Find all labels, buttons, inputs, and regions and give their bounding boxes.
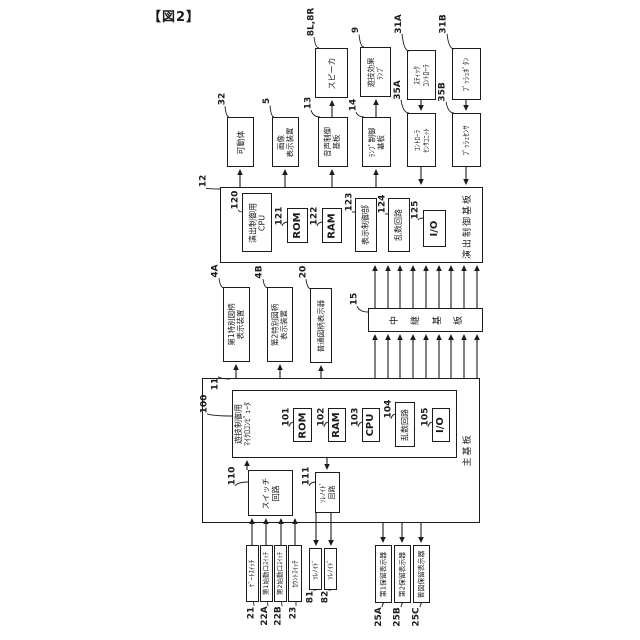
block-label: I/O (429, 221, 441, 237)
block-label: 第1特別図柄 表示装置 (228, 303, 246, 345)
block-label: スピーカ (327, 57, 336, 89)
block-push-button: ﾌﾟｯｼｭﾎﾞﾀﾝ (452, 48, 481, 100)
block-label: 第2特別図柄 表示装置 (271, 303, 289, 345)
block-label: RAM (331, 412, 343, 437)
block-solenoid-circuit: ｿﾚﾉｲﾄﾞ 回路 (315, 472, 340, 513)
block-count-switch: ｶｳﾝﾄｽｲｯﾁ (288, 545, 302, 602)
block-hold-display-1: 第1保留表示器 (375, 545, 392, 603)
block-label: ｿﾚﾉｲﾄﾞ (326, 559, 334, 579)
block-image-display-device: 画像 表示装置 (272, 117, 299, 167)
block-controller-sensor-unit: ｺﾝﾄﾛｰﾗ ｾﾝｻﾕﾆｯﾄ (407, 113, 436, 167)
block-label: ｽﾃｨｯｸ ｺﾝﾄﾛｰﾗ (413, 64, 431, 87)
block-hold-display-2: 第2保留表示器 (394, 545, 411, 603)
block-label: 音声制御 基板 (324, 127, 342, 157)
block-effect-io: I/O (423, 210, 446, 247)
block-label: 可動体 (236, 130, 245, 154)
block-solenoid-81: ｿﾚﾉｲﾄﾞ (309, 548, 322, 590)
block-label: 乱数回路 (400, 409, 409, 441)
block-label: 主基板 (463, 434, 474, 467)
block-main-board-label: 主基板 (458, 426, 478, 474)
block-label: I/O (435, 417, 447, 433)
block-start-switch-2: 第2始動口ｽｲｯﾁ (274, 545, 287, 602)
block-label: ｶｳﾝﾄｽｲｯﾁ (291, 560, 299, 587)
block-special-symbol-display-1: 第1特別図柄 表示装置 (223, 287, 250, 362)
block-effect-cpu: 演出制御用 CPU (242, 193, 272, 252)
block-label: ﾌﾟｯｼｭﾎﾞﾀﾝ (462, 57, 471, 91)
block-label: 表示制御部 (361, 205, 370, 245)
block-label: ROM (292, 212, 304, 238)
block-switch-circuit: スイッチ 回路 (248, 470, 293, 516)
block-label: 演出制御用 CPU (248, 203, 267, 243)
block-label: 遊技制御用 ﾏｲｸﾛｺﾝﾋﾟｭｰﾀ (234, 402, 253, 446)
block-movable-body: 可動体 (227, 117, 254, 167)
block-start-switch-1: 第1始動口ｽｲｯﾁ (260, 545, 273, 602)
block-gate-switch: ｹﾞｰﾄｽｲｯﾁ (246, 545, 259, 602)
block-label: 遊技効果 ﾗﾝﾌﾟ (367, 57, 385, 87)
figure-label: 【図2】 (148, 6, 200, 25)
block-label: 普通図柄表示器 (317, 299, 326, 352)
block-main-random-circuit: 乱数回路 (395, 402, 415, 447)
patent-figure-2: 【図2】 遊技制御用 ﾏｲｸﾛｺﾝﾋﾟｭｰﾀスピーカ遊技効果 ﾗﾝﾌﾟｽﾃｨｯｸ… (0, 0, 640, 640)
block-label: ｿﾚﾉｲﾄﾞ (311, 559, 319, 579)
block-label: 第2始動口ｽｲｯﾁ (277, 552, 285, 595)
block-solenoid-82: ｿﾚﾉｲﾄﾞ (324, 548, 337, 590)
block-normal-symbol-display: 普通図柄表示器 (310, 288, 332, 363)
block-label: ｺﾝﾄﾛｰﾗ ｾﾝｻﾕﾆｯﾄ (413, 128, 430, 153)
block-label: CPU (365, 414, 377, 437)
block-stick-controller: ｽﾃｨｯｸ ｺﾝﾄﾛｰﾗ (407, 50, 436, 100)
block-label: ﾗﾝﾌﾟ制御 基板 (368, 127, 386, 157)
block-speaker: スピーカ (315, 48, 348, 98)
block-effect-random-circuit: 乱数回路 (388, 198, 410, 252)
block-label: 第1始動口ｽｲｯﾁ (263, 552, 271, 595)
block-label: 乱数回路 (394, 209, 403, 241)
block-normal-hold-display: 普図保留表示器 (413, 545, 430, 603)
block-label: ﾌﾟｯｼｭｾﾝｻ (462, 125, 471, 155)
block-label: 演出制御基板 (463, 193, 474, 259)
block-push-sensor: ﾌﾟｯｼｭｾﾝｻ (452, 113, 481, 167)
block-label: RAM (326, 213, 338, 238)
block-label: スイッチ 回路 (261, 477, 280, 509)
block-label: 第2保留表示器 (398, 551, 406, 596)
block-display-control-unit: 表示制御部 (355, 198, 377, 252)
block-game-effect-lamp: 遊技効果 ﾗﾝﾌﾟ (360, 47, 391, 97)
block-label: 普図保留表示器 (417, 550, 425, 598)
block-main-io: I/O (432, 408, 450, 442)
block-label: 画像 表示装置 (277, 127, 295, 157)
block-lamp-control-board: ﾗﾝﾌﾟ制御 基板 (362, 117, 391, 167)
block-effect-rom: ROM (287, 208, 308, 243)
block-main-rom: ROM (293, 408, 312, 442)
block-effect-ram: RAM (322, 208, 342, 243)
block-relay-board: 中継基板 (368, 308, 483, 332)
block-label: ｿﾚﾉｲﾄﾞ 回路 (319, 482, 336, 503)
block-main-ram: RAM (328, 408, 346, 442)
block-special-symbol-display-2: 第2特別図柄 表示装置 (267, 287, 293, 362)
block-label: ROM (297, 412, 309, 438)
block-effect-board-label: 演出制御基板 (456, 192, 480, 260)
block-main-cpu: CPU (362, 408, 380, 442)
block-label: ｹﾞｰﾄｽｲｯﾁ (248, 560, 256, 587)
block-label: 第1保留表示器 (379, 551, 387, 596)
block-label: 中継基板 (383, 314, 467, 327)
block-sound-control-board: 音声制御 基板 (318, 117, 348, 167)
